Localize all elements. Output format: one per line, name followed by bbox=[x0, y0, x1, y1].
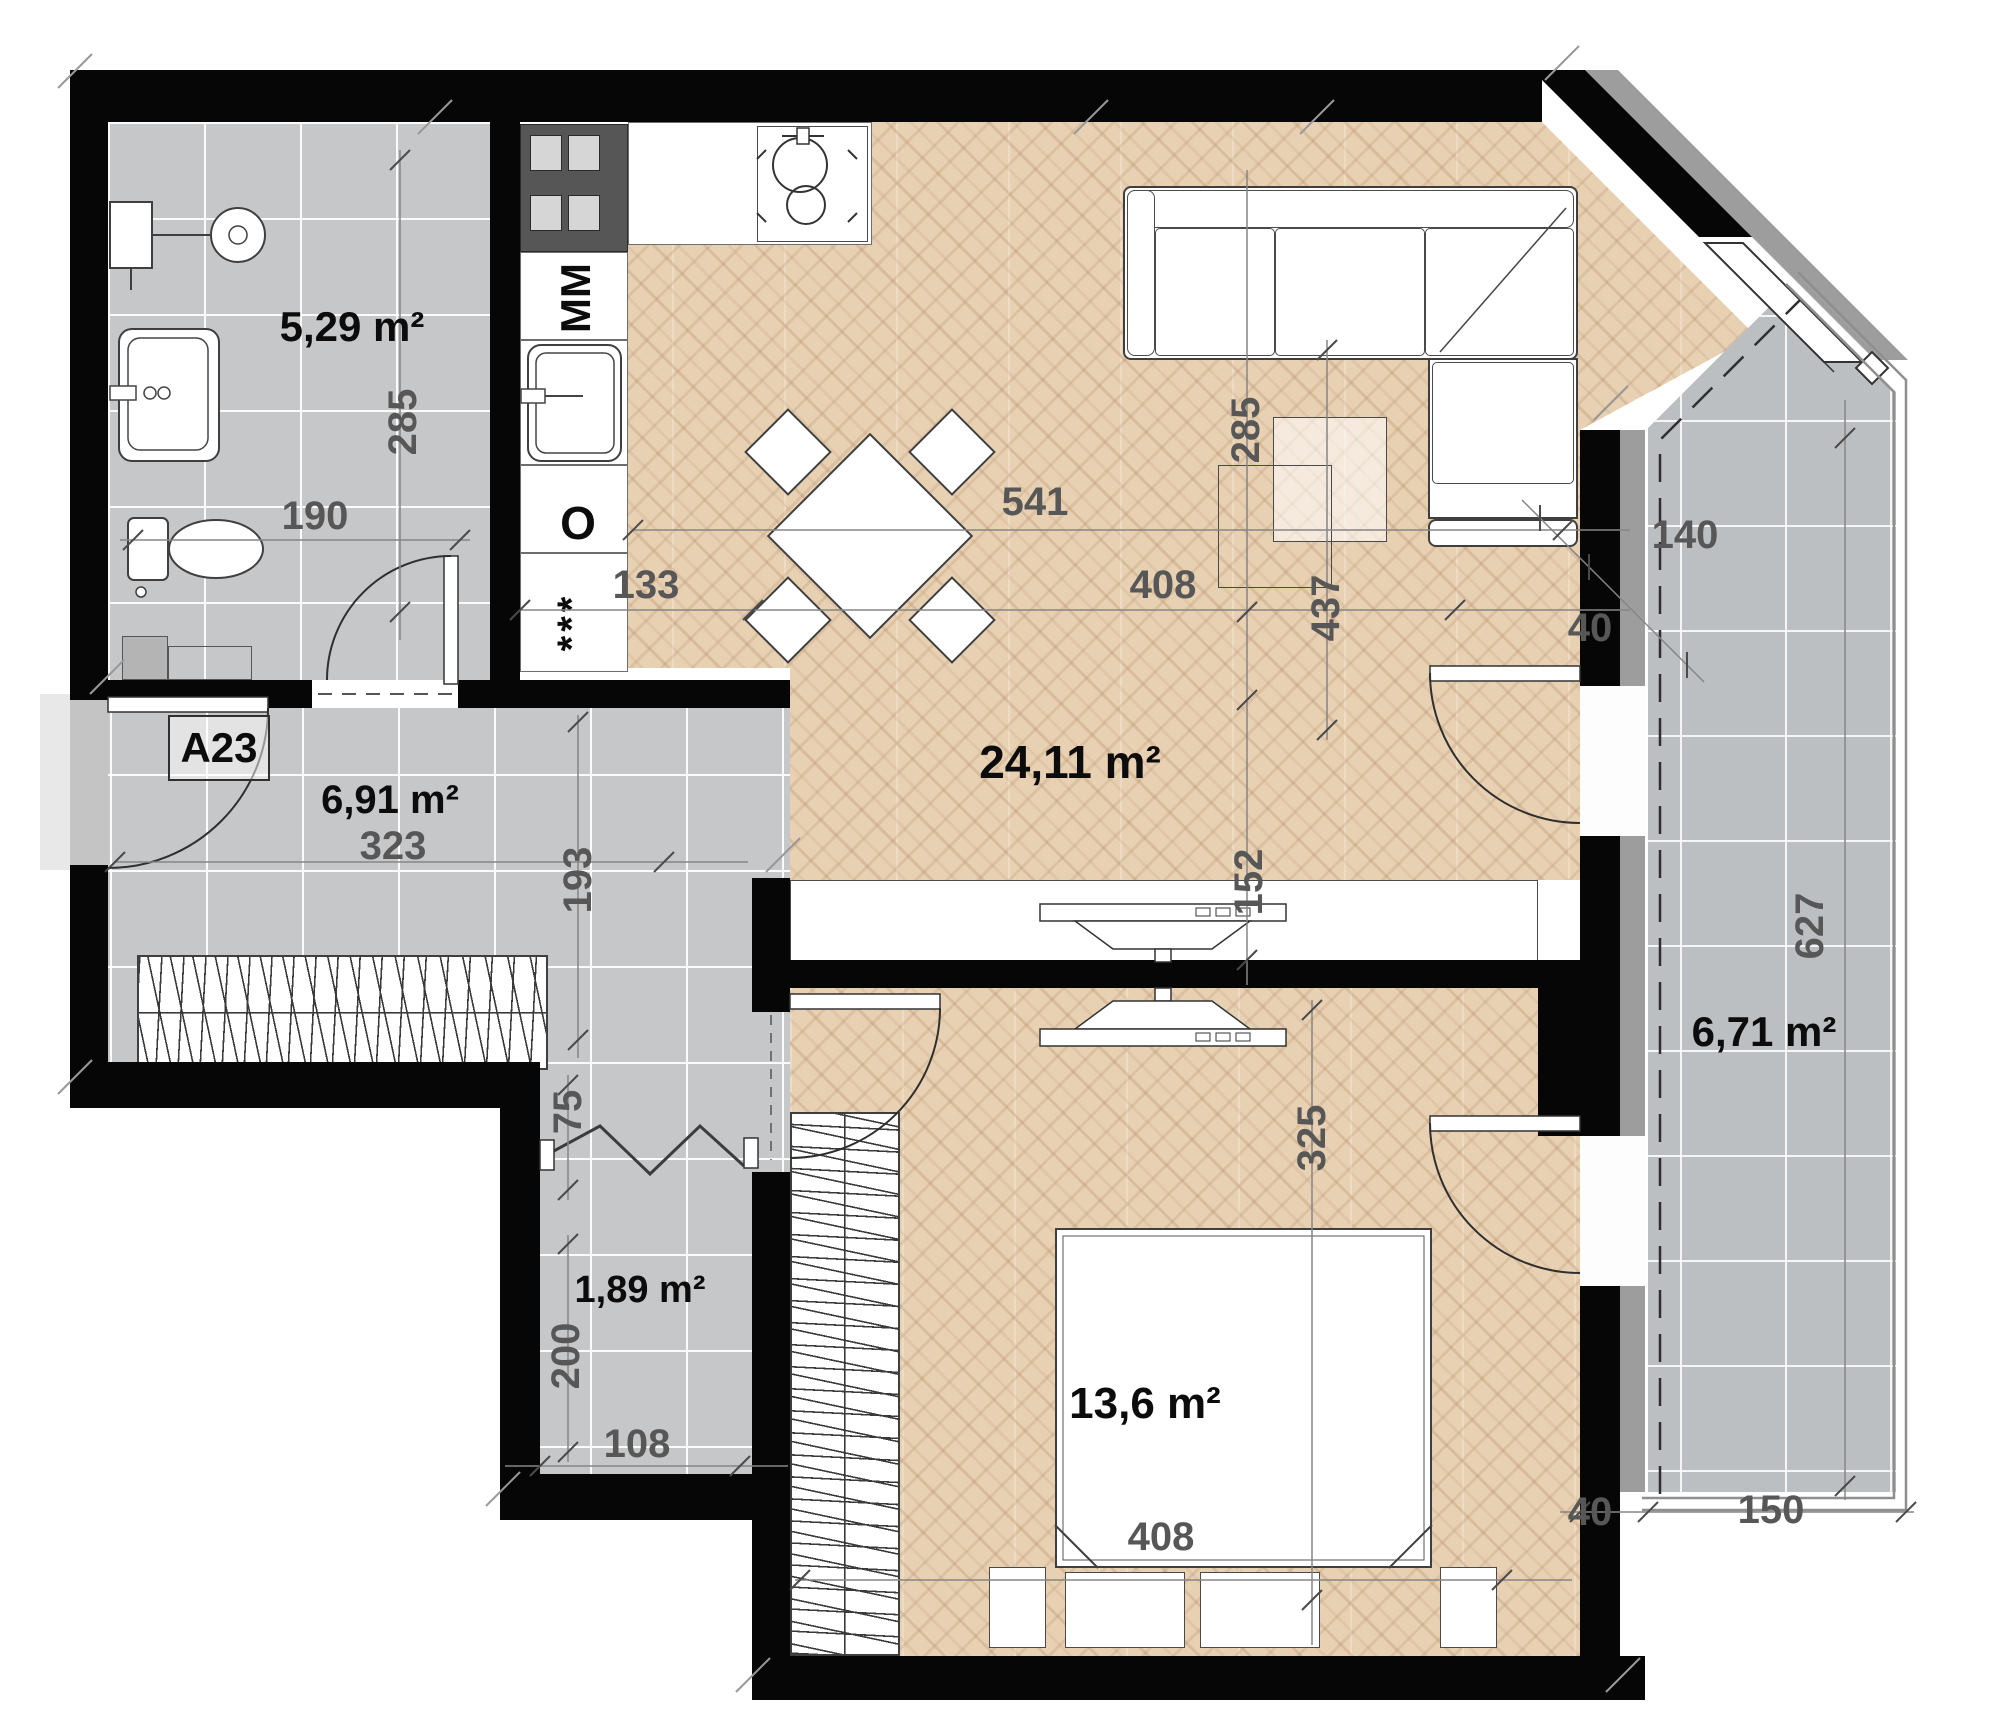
kitchen-sink-icon bbox=[527, 344, 622, 462]
entrance-threshold bbox=[70, 700, 108, 865]
dim-label: 150 bbox=[1738, 1490, 1805, 1530]
dim-label: 75 bbox=[548, 1090, 588, 1135]
wall-hall-top bbox=[458, 680, 790, 708]
wall-living-bedroom bbox=[752, 960, 1580, 988]
wall-corner-block bbox=[1538, 988, 1580, 1136]
nightstand bbox=[1440, 1567, 1497, 1648]
unit-label: A23 bbox=[180, 727, 257, 769]
wall-bedroom-left bbox=[752, 878, 790, 1012]
dim-label: 152 bbox=[1229, 849, 1269, 916]
room-area-living: 24,11 m² bbox=[979, 739, 1161, 785]
sofa-cushion bbox=[1425, 228, 1574, 356]
sofa-cushion bbox=[1155, 228, 1275, 356]
dim-label: 627 bbox=[1790, 893, 1830, 960]
sofa-chaise-cushion bbox=[1432, 362, 1574, 484]
dim-label: 437 bbox=[1306, 575, 1346, 642]
wall-hall-bottom bbox=[70, 1062, 540, 1108]
bathroom-cabinet bbox=[122, 636, 168, 680]
dim-label: 408 bbox=[1130, 565, 1197, 605]
sofa-footrest bbox=[1428, 519, 1578, 547]
wall-bath-kitchen bbox=[490, 122, 520, 680]
balcony-door-gap bbox=[1580, 686, 1645, 836]
room-area-hall: 6,91 m² bbox=[321, 780, 459, 820]
dim-label: 200 bbox=[546, 1323, 586, 1390]
tv-sideboard bbox=[790, 880, 1538, 962]
dim-label: 40 bbox=[1568, 608, 1613, 648]
dim-label: 190 bbox=[282, 496, 349, 536]
dim-label: 325 bbox=[1292, 1105, 1332, 1172]
room-area-storage: 1,89 m² bbox=[575, 1271, 706, 1309]
wall-storage-left bbox=[500, 1108, 540, 1520]
wall-top bbox=[70, 70, 1542, 122]
balcony-door-gap bbox=[1580, 1136, 1645, 1286]
bathroom-door-gap bbox=[312, 680, 458, 708]
dishwasher-label: MM bbox=[555, 263, 597, 333]
room-area-bathroom: 5,29 m² bbox=[280, 306, 425, 348]
coffee-table bbox=[1218, 465, 1332, 588]
wall-bedroom-left bbox=[752, 1172, 790, 1656]
dim-label: 285 bbox=[383, 389, 423, 456]
unit-label-box: A23 bbox=[168, 715, 270, 781]
fridge-label: *** bbox=[552, 593, 592, 652]
dim-label: 285 bbox=[1226, 397, 1266, 464]
wall-sill bbox=[1620, 1286, 1645, 1492]
dim-label: 541 bbox=[1002, 482, 1069, 522]
sofa-cushion bbox=[1275, 228, 1425, 356]
room-area-bedroom: 13,6 m² bbox=[1069, 1382, 1221, 1426]
dim-label: 108 bbox=[604, 1424, 671, 1464]
dim-label: 140 bbox=[1652, 515, 1719, 555]
floor-plan: MM O *** bbox=[0, 0, 1995, 1732]
wall-bottom bbox=[752, 1656, 1645, 1700]
wall-sill bbox=[1620, 836, 1645, 1136]
dim-label: 40 bbox=[1568, 1492, 1613, 1532]
hall-wardrobe bbox=[137, 955, 548, 1070]
sofa-armrest bbox=[1127, 190, 1155, 356]
nightstand bbox=[989, 1567, 1046, 1648]
bed-pillow bbox=[1200, 1572, 1320, 1648]
bedroom-wardrobe bbox=[790, 1112, 900, 1656]
dim-label: 133 bbox=[613, 565, 680, 605]
dim-label: 193 bbox=[558, 847, 598, 914]
room-area-balcony: 6,71 m² bbox=[1692, 1011, 1837, 1053]
wall-storage-bottom bbox=[500, 1474, 790, 1520]
bathroom-sink bbox=[118, 328, 220, 462]
wall-left bbox=[70, 122, 108, 700]
oven-label: O bbox=[560, 500, 596, 546]
dim-label: 323 bbox=[360, 826, 427, 866]
entrance-landing bbox=[40, 694, 70, 870]
counter-sink-icon bbox=[757, 126, 868, 242]
sofa-back bbox=[1127, 190, 1574, 228]
wall-right bbox=[1580, 836, 1620, 1136]
wall-sill bbox=[1620, 430, 1645, 686]
stove-icon bbox=[520, 124, 628, 252]
bathroom-cabinet bbox=[168, 646, 252, 680]
dim-label: 408 bbox=[1128, 1517, 1195, 1557]
bed-pillow bbox=[1065, 1572, 1185, 1648]
